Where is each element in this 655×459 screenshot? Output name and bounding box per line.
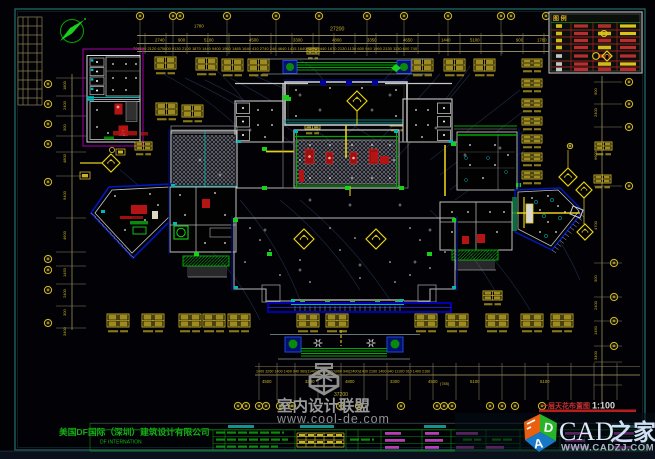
svg-text:3300: 3300 xyxy=(293,38,303,43)
svg-text:1450: 1450 xyxy=(593,325,598,335)
svg-text:4700: 4700 xyxy=(593,220,598,230)
svg-text:1440: 1440 xyxy=(441,38,451,43)
svg-text:3400: 3400 xyxy=(593,350,598,360)
svg-text:2740: 2740 xyxy=(155,38,165,43)
svg-text:WWW.CADZJ.COM: WWW.CADZJ.COM xyxy=(561,443,654,454)
svg-text:之家: 之家 xyxy=(610,419,655,445)
svg-text:1780: 1780 xyxy=(537,38,547,43)
svg-text:300: 300 xyxy=(62,124,67,131)
svg-text:2400: 2400 xyxy=(593,300,598,310)
svg-text:4500: 4500 xyxy=(262,379,272,384)
svg-text:一层天花布置图: 一层天花布置图 xyxy=(541,401,590,410)
svg-text:1780: 1780 xyxy=(194,24,204,29)
svg-text:3400: 3400 xyxy=(62,326,67,336)
svg-text:图 例: 图 例 xyxy=(553,15,567,23)
svg-text:美国DF国际（深圳）建筑设计有限公司: 美国DF国际（深圳）建筑设计有限公司 xyxy=(59,426,210,437)
svg-text:(785): (785) xyxy=(440,381,450,386)
svg-text:2400: 2400 xyxy=(593,107,598,117)
svg-text:900: 900 xyxy=(178,38,186,43)
svg-text:900: 900 xyxy=(516,38,524,43)
svg-text:900: 900 xyxy=(593,88,598,95)
svg-text:1450: 1450 xyxy=(62,267,67,277)
svg-text:2400: 2400 xyxy=(62,100,67,110)
svg-text:5100: 5100 xyxy=(540,379,550,384)
svg-text:9400: 9400 xyxy=(62,190,67,200)
svg-text:DF INTERNATION: DF INTERNATION xyxy=(100,440,142,446)
svg-text:300: 300 xyxy=(62,309,67,316)
svg-text:4650: 4650 xyxy=(403,38,413,43)
svg-text:2400: 2400 xyxy=(62,288,67,298)
svg-text:4800: 4800 xyxy=(345,379,355,384)
svg-text:4600: 4600 xyxy=(62,230,67,240)
svg-text:1400 3260 1400 1400 940 960(19: 1400 3260 1400 1400 940 960(1940)4750(19… xyxy=(256,370,430,374)
svg-text:27200: 27200 xyxy=(330,27,345,33)
svg-text:3350: 3350 xyxy=(367,38,377,43)
svg-text:300: 300 xyxy=(593,275,598,282)
svg-text:5100: 5100 xyxy=(470,379,480,384)
svg-text:5100: 5100 xyxy=(470,38,480,43)
svg-text:1800: 1800 xyxy=(62,80,67,90)
svg-text:3300: 3300 xyxy=(390,379,400,384)
svg-text:4800: 4800 xyxy=(62,153,67,163)
svg-text:www.cool-de.com: www.cool-de.com xyxy=(276,412,390,426)
svg-text:5100: 5100 xyxy=(204,38,214,43)
svg-text:1:100: 1:100 xyxy=(592,401,615,411)
svg-text:705600 2120 675600 9130 2100 1: 705600 2120 675600 9130 2100 1870 1440 9… xyxy=(133,46,418,51)
svg-text:4800: 4800 xyxy=(332,38,342,43)
svg-text:4500: 4500 xyxy=(249,38,259,43)
